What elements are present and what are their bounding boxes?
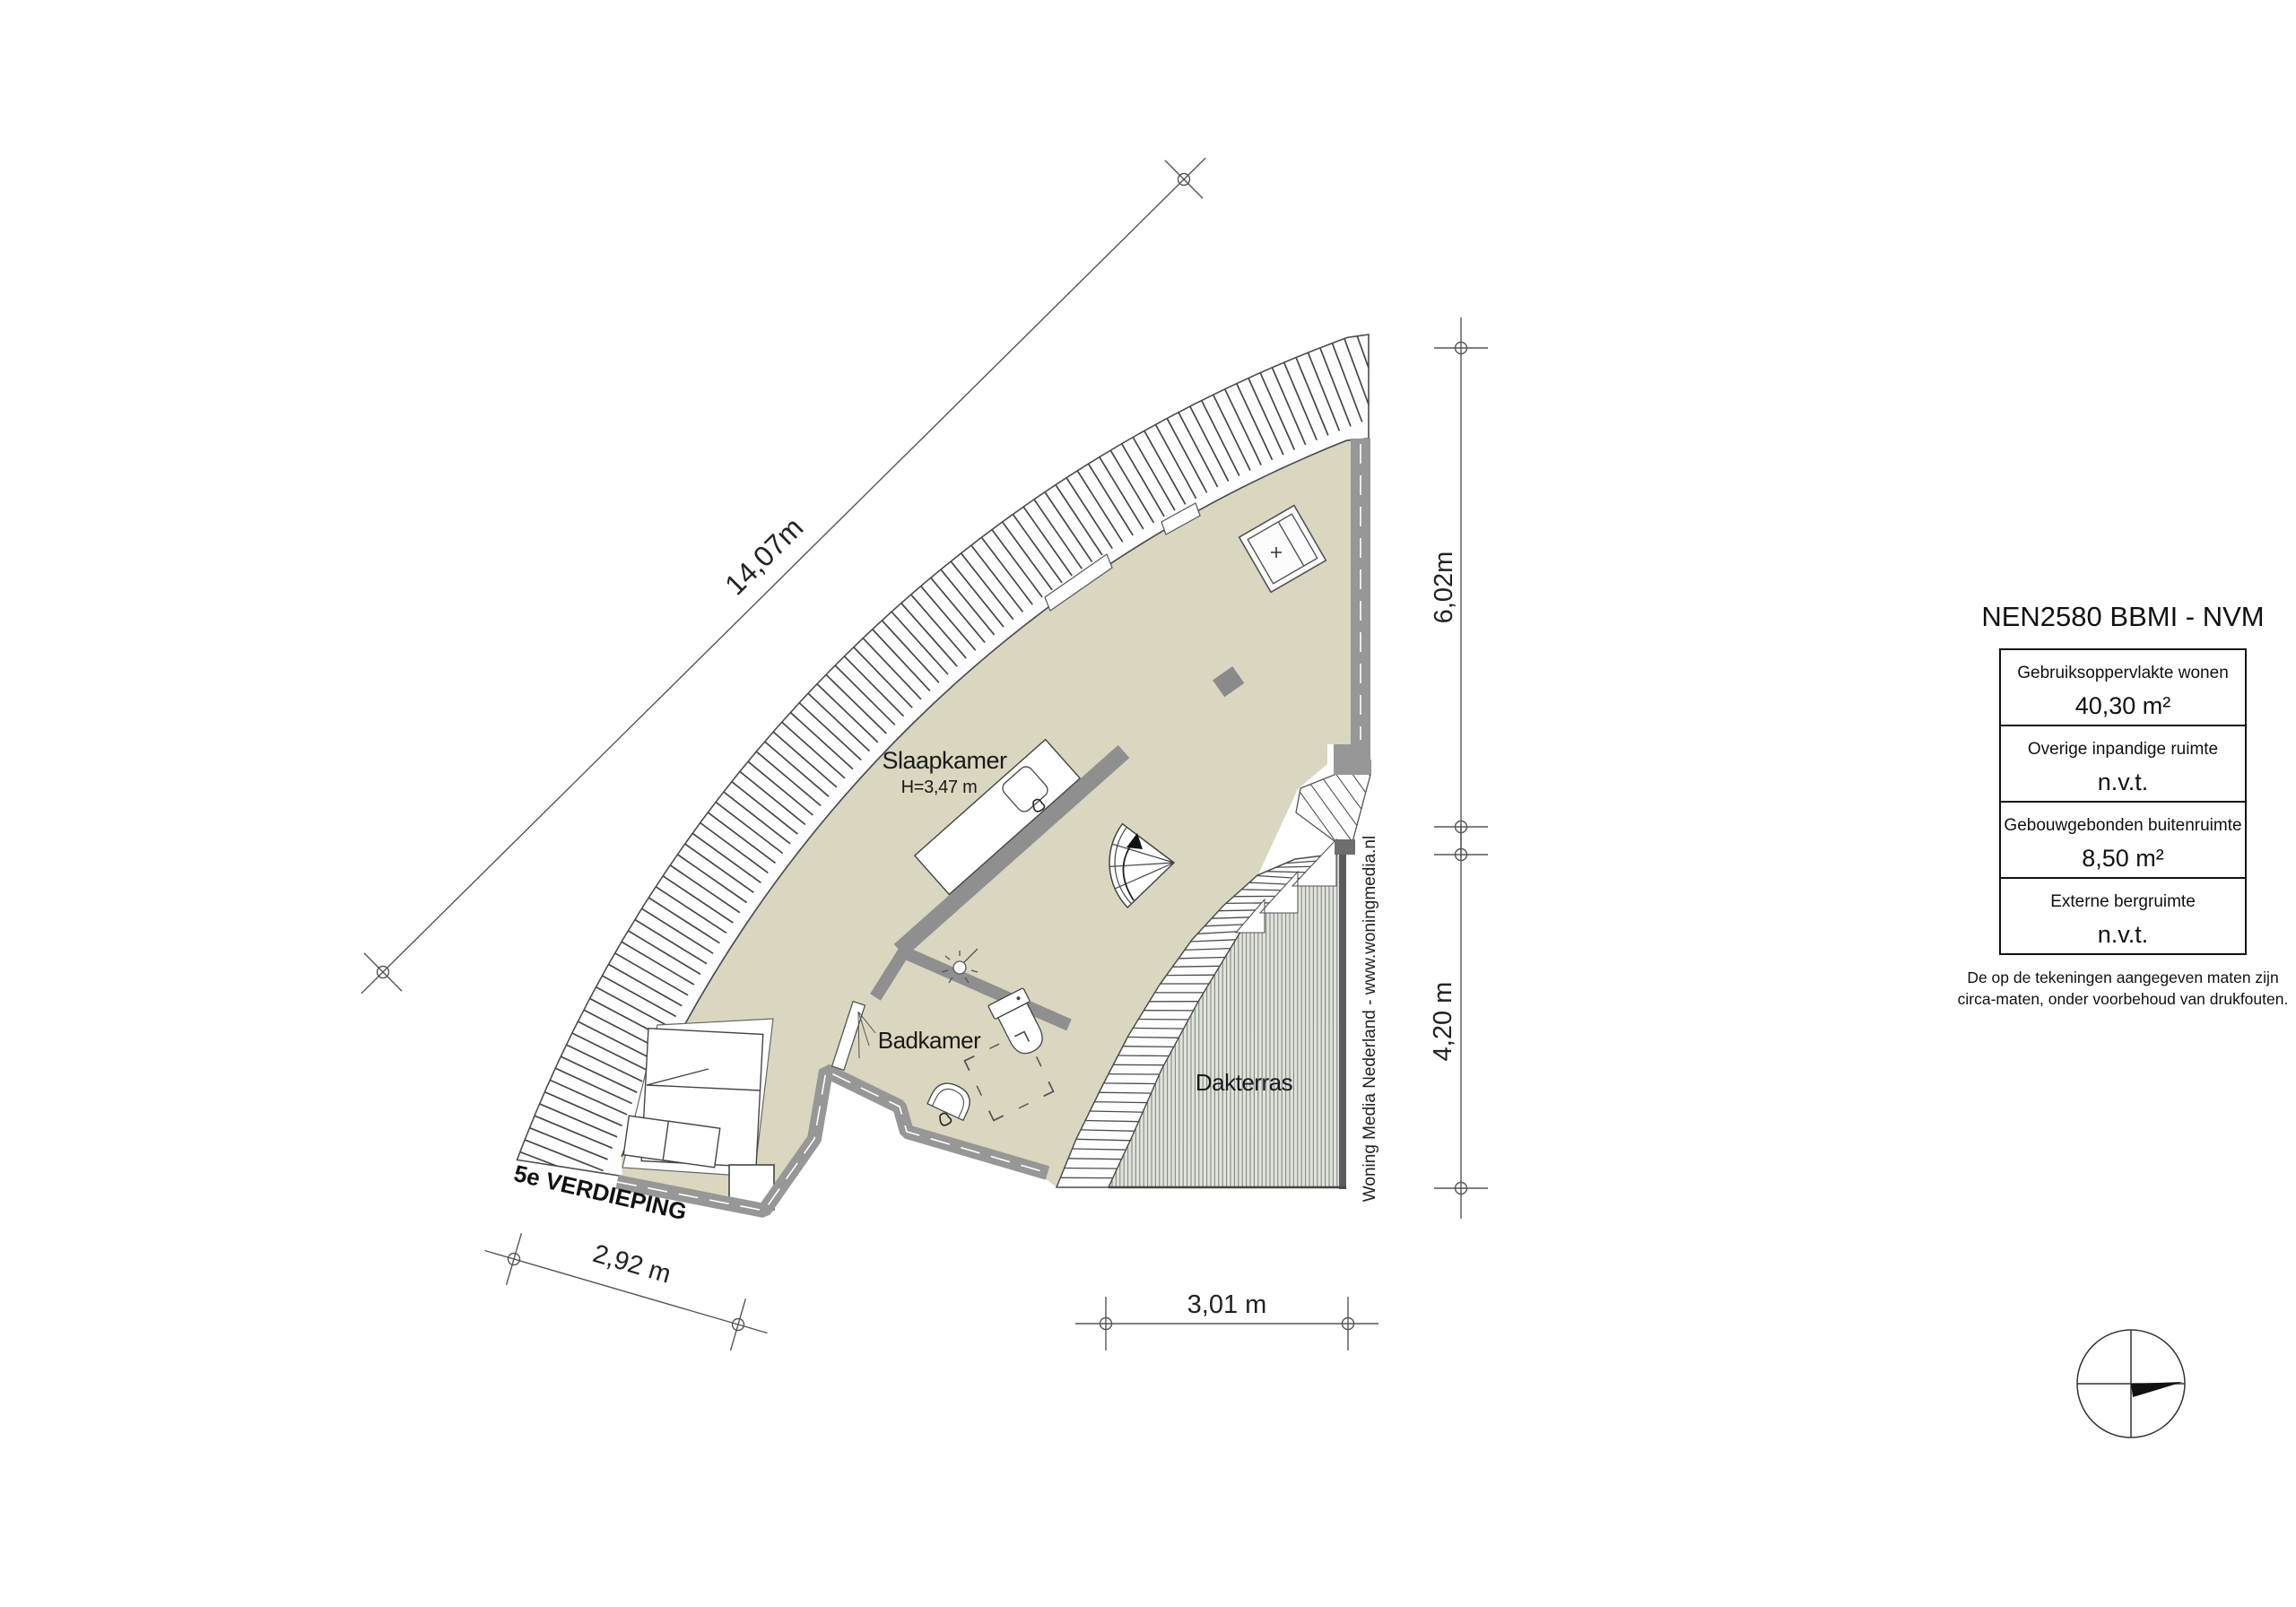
svg-text:De op de tekeningen aangegeven: De op de tekeningen aangegeven maten zij… <box>1967 969 2278 986</box>
svg-text:Woning Media Nederland - www.w: Woning Media Nederland - www.woningmedia… <box>1361 836 1379 1202</box>
svg-text:n.v.t.: n.v.t. <box>2098 769 2149 795</box>
svg-text:3,01 m: 3,01 m <box>1187 1290 1267 1319</box>
svg-text:circa-maten, onder voorbehoud: circa-maten, onder voorbehoud van drukfo… <box>1958 990 2289 1008</box>
svg-text:n.v.t.: n.v.t. <box>2098 921 2149 948</box>
svg-text:Overige inpandige ruimte: Overige inpandige ruimte <box>2028 740 2218 759</box>
svg-text:Badkamer: Badkamer <box>878 1027 981 1054</box>
svg-text:Slaapkamer: Slaapkamer <box>882 747 1007 774</box>
svg-text:2,92 m: 2,92 m <box>589 1239 674 1290</box>
svg-text:Dakterras: Dakterras <box>1196 1069 1293 1096</box>
svg-text:NEN2580 BBMI - NVM: NEN2580 BBMI - NVM <box>1981 601 2264 632</box>
svg-text:8,50 m²: 8,50 m² <box>2082 845 2164 872</box>
svg-text:6,02m: 6,02m <box>1430 552 1458 624</box>
svg-text:Gebouwgebonden buitenruimte: Gebouwgebonden buitenruimte <box>2004 816 2241 835</box>
svg-text:14,07m: 14,07m <box>718 511 809 602</box>
svg-text:Externe bergruimte: Externe bergruimte <box>2050 892 2196 911</box>
svg-text:H=3,47 m: H=3,47 m <box>901 777 978 797</box>
svg-text:Gebruiksoppervlakte wonen: Gebruiksoppervlakte wonen <box>2017 664 2229 682</box>
svg-text:4,20 m: 4,20 m <box>1429 982 1457 1062</box>
svg-text:40,30 m²: 40,30 m² <box>2075 692 2171 719</box>
